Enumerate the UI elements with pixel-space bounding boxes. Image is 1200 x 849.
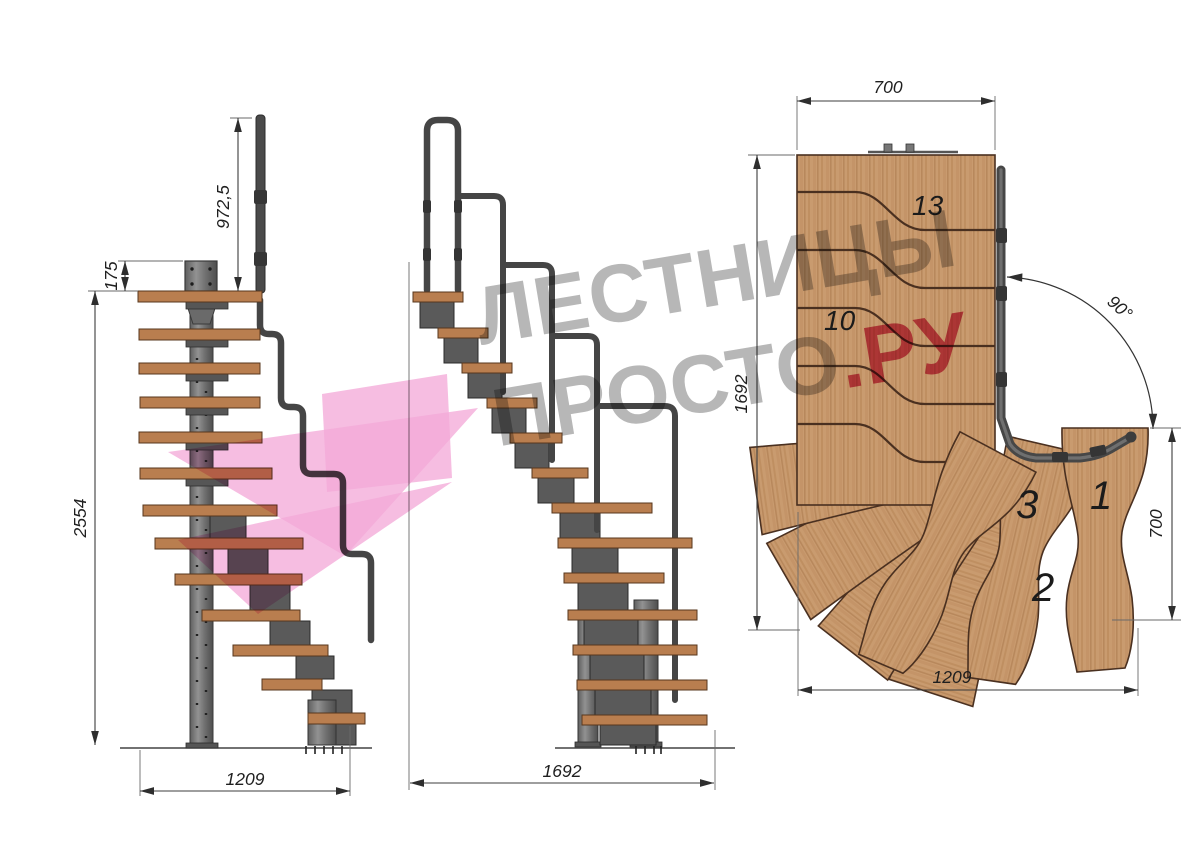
dim-plan-right-width: 700	[1146, 509, 1166, 538]
turn-angle-arc	[1007, 277, 1153, 429]
dim-side-length: 1209	[226, 769, 265, 789]
dim-total-height: 2554	[70, 498, 90, 538]
technical-drawing: 972,5 175 2554 1209	[0, 0, 1200, 849]
anchor-bolts	[306, 746, 342, 754]
front-elevation-view: 1692	[409, 120, 735, 790]
step-label-10: 10	[824, 305, 856, 336]
dim-front-length: 1692	[543, 761, 582, 781]
step-label-13: 13	[912, 190, 944, 221]
dim-top-step-offset: 175	[101, 261, 121, 290]
top-bracket	[868, 144, 958, 152]
step-label-1: 1	[1090, 474, 1112, 518]
modules	[420, 302, 656, 745]
handrail-post	[254, 115, 267, 293]
dim-handrail-height: 972,5	[213, 185, 233, 229]
dim-plan-left-length: 1692	[731, 374, 751, 413]
dim-plan-bottom-length: 1209	[933, 667, 972, 687]
dim-plan-top-width: 700	[873, 77, 902, 97]
step-label-3: 3	[1016, 483, 1038, 527]
staircase-drawing-page: 972,5 175 2554 1209	[0, 0, 1200, 849]
dim-turn-angle: 90°	[1103, 291, 1136, 324]
step-label-2: 2	[1031, 566, 1054, 610]
plan-view: 13 10 3 1 2 700	[731, 77, 1181, 706]
side-elevation-view: 972,5 175 2554 1209	[70, 115, 372, 796]
